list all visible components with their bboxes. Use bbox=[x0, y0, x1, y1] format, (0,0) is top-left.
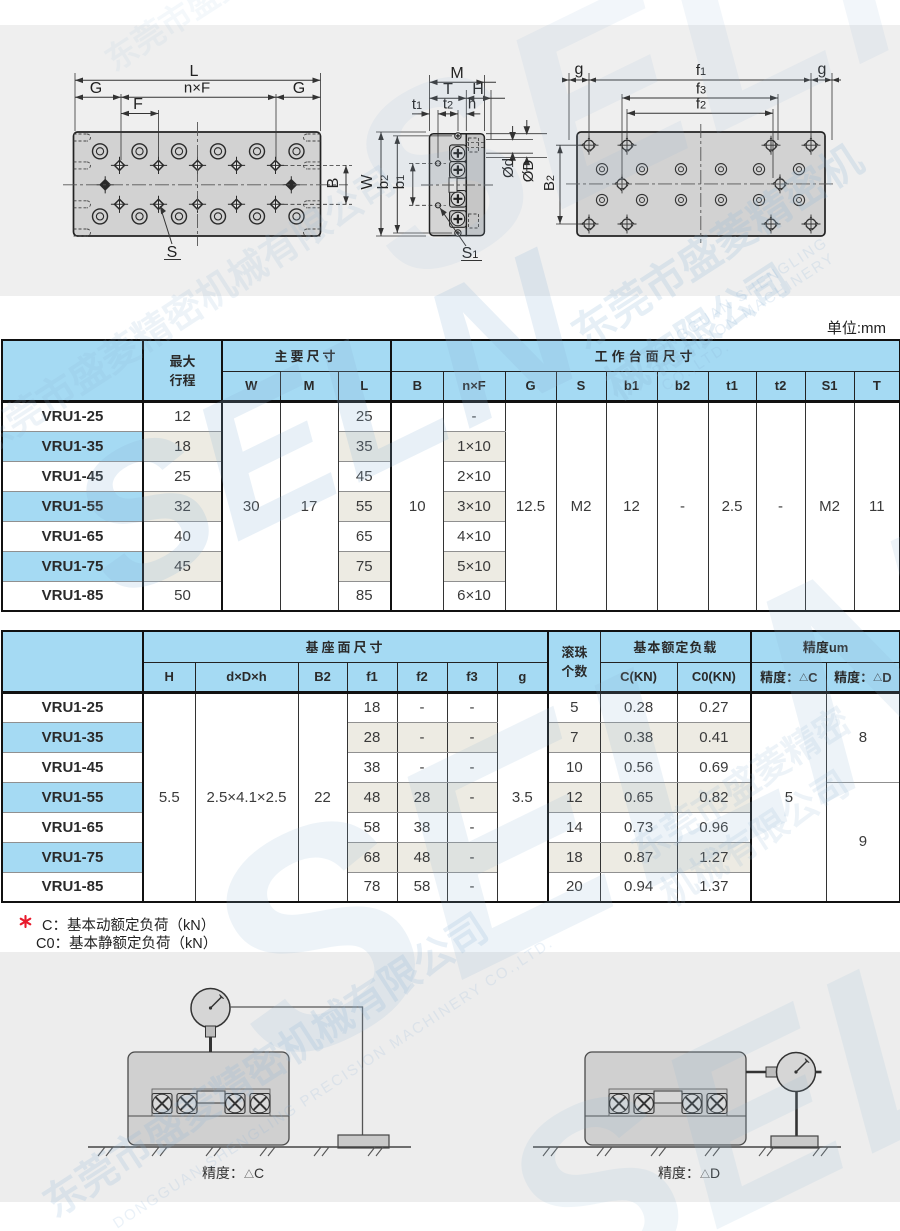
svg-text:M: M bbox=[450, 65, 463, 82]
svg-text:g: g bbox=[818, 61, 827, 78]
svg-text:g: g bbox=[575, 61, 584, 78]
svg-text:f1: f1 bbox=[696, 62, 706, 79]
svg-text:F: F bbox=[133, 96, 143, 113]
svg-text:S: S bbox=[167, 244, 178, 261]
svg-text:h: h bbox=[468, 96, 476, 113]
svg-text:b1: b1 bbox=[391, 175, 408, 189]
svg-text:L: L bbox=[190, 63, 199, 80]
svg-text:B2: B2 bbox=[541, 175, 558, 191]
svg-text:G: G bbox=[90, 80, 102, 97]
svg-text:G: G bbox=[293, 80, 305, 97]
svg-text:B: B bbox=[325, 178, 342, 189]
svg-text:S1: S1 bbox=[462, 245, 479, 262]
svg-text:b2: b2 bbox=[375, 175, 392, 189]
svg-text:Ød: Ød bbox=[500, 158, 517, 178]
svg-text:ØD: ØD bbox=[520, 160, 537, 183]
svg-text:W: W bbox=[359, 174, 376, 190]
svg-text:n×F: n×F bbox=[184, 80, 210, 97]
svg-text:t1: t1 bbox=[412, 96, 422, 113]
